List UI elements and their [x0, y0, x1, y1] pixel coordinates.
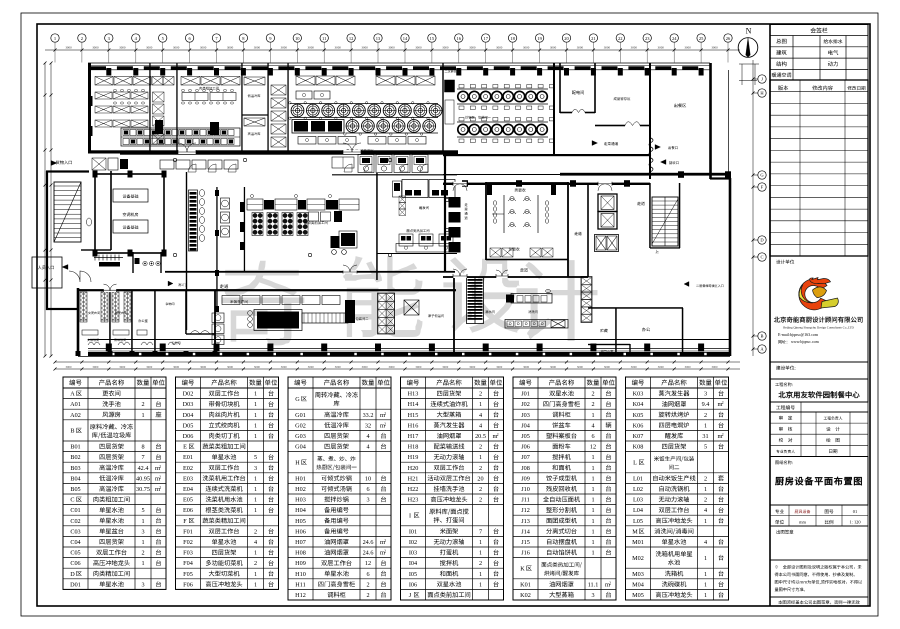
svg-text:A: A — [70, 391, 75, 398]
svg-text:3000: 3000 — [658, 46, 665, 50]
svg-text:2: 2 — [159, 475, 161, 479]
svg-text:2: 2 — [366, 581, 369, 588]
svg-text:H13: H13 — [408, 391, 419, 398]
svg-text:L02: L02 — [633, 486, 643, 493]
svg-text:H19: H19 — [408, 454, 419, 461]
svg-text:K07: K07 — [633, 433, 644, 440]
svg-text:3000: 3000 — [173, 365, 180, 369]
svg-text:9.4: 9.4 — [702, 401, 710, 408]
svg-text:1: 1 — [704, 592, 707, 599]
svg-text:2: 2 — [479, 444, 482, 451]
svg-text:1: 1 — [254, 475, 257, 482]
svg-text:1: 1 — [591, 507, 594, 514]
svg-text:I02: I02 — [409, 539, 417, 546]
svg-text:2: 2 — [704, 475, 707, 482]
svg-text:3000: 3000 — [469, 365, 476, 369]
svg-text:E-mail:bjqnsc@163.com: E-mail:bjqnsc@163.com — [778, 332, 819, 337]
svg-text:17: 17 — [483, 36, 488, 41]
svg-text:2: 2 — [81, 36, 83, 41]
svg-text:F05: F05 — [183, 571, 193, 578]
svg-text:K02: K02 — [520, 592, 531, 599]
svg-text:32: 32 — [365, 422, 371, 429]
svg-text:4: 4 — [479, 412, 482, 419]
svg-text:3000: 3000 — [550, 46, 557, 50]
svg-text:5: 5 — [254, 454, 257, 461]
svg-text:3000: 3000 — [146, 46, 153, 50]
svg-text:2: 2 — [479, 465, 482, 472]
svg-text:4: 4 — [254, 539, 257, 546]
svg-text:B: B — [760, 334, 763, 339]
svg-text:F01: F01 — [183, 528, 193, 535]
svg-text:20: 20 — [477, 475, 483, 482]
svg-text:J: J — [761, 77, 763, 82]
svg-text:K05: K05 — [633, 412, 644, 419]
svg-text:K: K — [520, 566, 525, 573]
svg-text:5: 5 — [141, 507, 144, 514]
svg-text:1: 1 — [704, 486, 707, 493]
svg-text:2: 2 — [384, 539, 386, 543]
svg-text:3: 3 — [591, 592, 594, 599]
svg-text:6: 6 — [366, 486, 369, 493]
svg-text:7: 7 — [479, 528, 482, 535]
svg-text:1: 1 — [141, 518, 144, 525]
svg-text:4: 4 — [366, 433, 369, 440]
svg-text:3000: 3000 — [496, 365, 503, 369]
svg-text:H23: H23 — [408, 497, 419, 504]
svg-text:20: 20 — [564, 36, 569, 41]
svg-text:J03: J03 — [521, 412, 530, 419]
svg-text:H06: H06 — [295, 528, 306, 535]
svg-text:1: 1 — [141, 412, 144, 419]
svg-text:A02: A02 — [70, 412, 81, 419]
svg-text:M: M — [632, 528, 638, 535]
svg-text:4: 4 — [704, 539, 707, 546]
svg-text:C04: C04 — [70, 539, 80, 546]
svg-text:3000: 3000 — [200, 365, 207, 369]
svg-text:3000: 3000 — [496, 46, 503, 50]
svg-text:B01: B01 — [70, 444, 80, 451]
svg-text:2: 2 — [722, 401, 724, 405]
svg-text:4: 4 — [366, 444, 369, 451]
svg-text:16: 16 — [457, 36, 462, 41]
svg-text:1: 1 — [479, 401, 482, 408]
svg-text:3000: 3000 — [308, 365, 315, 369]
svg-text:I06: I06 — [409, 581, 417, 588]
svg-text:2: 2 — [384, 412, 386, 416]
svg-text:40.95: 40.95 — [136, 475, 150, 482]
svg-text:12: 12 — [365, 560, 371, 567]
svg-text:1: 1 — [704, 581, 707, 588]
svg-text:K06: K06 — [633, 422, 644, 429]
svg-text:H12: H12 — [295, 592, 306, 599]
svg-text:3000: 3000 — [442, 365, 449, 369]
svg-text:E02: E02 — [183, 465, 193, 472]
svg-text:3000: 3000 — [227, 365, 234, 369]
svg-text:3000: 3000 — [711, 46, 718, 50]
svg-text:4: 4 — [591, 422, 594, 429]
svg-text:1: 1 — [254, 550, 257, 557]
svg-text:3000: 3000 — [577, 365, 584, 369]
svg-text:2: 2 — [591, 391, 594, 398]
svg-text:3000: 3000 — [442, 46, 449, 50]
svg-text:H07: H07 — [295, 539, 306, 546]
svg-text:H03: H03 — [295, 497, 306, 504]
svg-text:4: 4 — [704, 507, 707, 514]
svg-text:1: 1 — [591, 486, 594, 493]
svg-text:3000: 3000 — [658, 365, 665, 369]
svg-text:1: 1 — [254, 401, 257, 408]
svg-text:A01: A01 — [70, 401, 81, 408]
svg-text:6: 6 — [366, 571, 369, 578]
svg-text:1: 1 — [591, 539, 594, 546]
svg-text:10: 10 — [365, 475, 371, 482]
svg-text:10: 10 — [295, 36, 300, 41]
svg-text:3000: 3000 — [281, 365, 288, 369]
svg-text:3: 3 — [141, 581, 144, 588]
svg-text:2: 2 — [479, 560, 482, 567]
svg-text:J01: J01 — [521, 391, 530, 398]
svg-text:H14: H14 — [408, 401, 419, 408]
svg-text:2: 2 — [384, 422, 386, 426]
svg-text:2: 2 — [479, 497, 482, 504]
svg-text:1: 1 — [254, 422, 257, 429]
svg-text:3000: 3000 — [361, 46, 368, 50]
svg-text:H05: H05 — [295, 518, 306, 525]
svg-text:01: 01 — [853, 509, 857, 514]
svg-text:C: C — [70, 497, 74, 504]
svg-text:1: 120: 1: 120 — [849, 520, 861, 525]
svg-text:1: 1 — [704, 518, 707, 525]
svg-text:3000: 3000 — [254, 365, 261, 369]
svg-text:1: 1 — [591, 412, 594, 419]
svg-text:1: 1 — [591, 528, 594, 535]
svg-text:20.5: 20.5 — [475, 433, 486, 440]
svg-text:E03: E03 — [183, 475, 193, 482]
svg-text:M03: M03 — [632, 571, 644, 578]
svg-text:3000: 3000 — [119, 46, 126, 50]
svg-text:3000: 3000 — [389, 365, 396, 369]
svg-text:B03: B03 — [70, 465, 80, 472]
svg-text:J07: J07 — [521, 454, 530, 461]
svg-text:H08: H08 — [295, 550, 306, 557]
svg-text:1: 1 — [591, 475, 594, 482]
svg-text:H21: H21 — [408, 475, 419, 482]
svg-text:G03: G03 — [295, 433, 306, 440]
svg-text:H15: H15 — [408, 412, 419, 419]
svg-text:D04: D04 — [183, 412, 194, 419]
svg-text:2: 2 — [479, 486, 482, 493]
svg-text:F02: F02 — [183, 539, 193, 546]
svg-text:3: 3 — [254, 465, 257, 472]
svg-text:1: 1 — [479, 539, 482, 546]
svg-text:1: 1 — [254, 497, 257, 504]
svg-text:G01: G01 — [295, 412, 306, 419]
svg-text:3000: 3000 — [227, 46, 234, 50]
svg-text:3000: 3000 — [415, 46, 422, 50]
svg-text:1: 1 — [254, 433, 257, 440]
svg-text:G: G — [295, 396, 300, 403]
svg-text:H10: H10 — [295, 571, 306, 578]
svg-text:H09: H09 — [295, 560, 306, 567]
svg-text:C03: C03 — [70, 528, 80, 535]
svg-text:24: 24 — [672, 36, 677, 41]
svg-text:5: 5 — [704, 444, 707, 451]
svg-text:I05: I05 — [409, 571, 417, 578]
svg-text:3000: 3000 — [712, 365, 719, 369]
svg-text:2: 2 — [704, 497, 707, 504]
svg-text:11.1: 11.1 — [588, 581, 599, 588]
svg-text:J13: J13 — [521, 518, 530, 525]
svg-text:15: 15 — [430, 36, 435, 41]
svg-text:3000: 3000 — [415, 365, 422, 369]
svg-text:23: 23 — [645, 36, 650, 41]
svg-text:K08: K08 — [633, 444, 644, 451]
svg-text:1: 1 — [591, 550, 594, 557]
svg-text:I: I — [409, 513, 411, 520]
svg-text:1: 1 — [254, 571, 257, 578]
svg-text:F: F — [183, 518, 187, 525]
svg-text:J09: J09 — [521, 475, 530, 482]
svg-text:3000: 3000 — [577, 46, 584, 50]
svg-text:L01: L01 — [633, 475, 643, 482]
svg-text:2: 2 — [609, 581, 611, 585]
svg-text:J12: J12 — [521, 507, 530, 514]
svg-text:3000: 3000 — [335, 46, 342, 50]
svg-text:18: 18 — [510, 36, 515, 41]
svg-text:3000: 3000 — [604, 46, 611, 50]
svg-text:D05: D05 — [183, 422, 194, 429]
svg-text:11: 11 — [322, 36, 326, 41]
svg-text:4: 4 — [479, 422, 482, 429]
svg-text:1: 1 — [591, 454, 594, 461]
svg-text:21: 21 — [591, 36, 596, 41]
svg-text:7: 7 — [141, 454, 144, 461]
svg-text:12: 12 — [349, 36, 354, 41]
svg-text:H11: H11 — [295, 581, 305, 588]
svg-text:3000: 3000 — [92, 365, 99, 369]
svg-text:24.6: 24.6 — [363, 550, 374, 557]
svg-text:13: 13 — [376, 36, 381, 41]
svg-text:3000: 3000 — [362, 365, 369, 369]
svg-text:K03: K03 — [633, 391, 644, 398]
svg-text:26: 26 — [726, 36, 731, 41]
svg-text:12: 12 — [590, 444, 596, 451]
svg-text:2: 2 — [141, 550, 144, 557]
svg-text:3: 3 — [141, 528, 144, 535]
svg-text:3000: 3000 — [469, 46, 476, 50]
svg-text:H22: H22 — [408, 486, 419, 493]
svg-text:E06: E06 — [183, 507, 193, 514]
svg-text:D01: D01 — [70, 581, 81, 588]
svg-text:H20: H20 — [408, 465, 419, 472]
svg-text:J10: J10 — [521, 486, 530, 493]
svg-text:J05: J05 — [521, 433, 530, 440]
svg-text:3000: 3000 — [146, 365, 153, 369]
svg-text:3000: 3000 — [119, 365, 126, 369]
svg-text:M04: M04 — [632, 581, 644, 588]
svg-text:E01: E01 — [183, 454, 193, 461]
svg-text:F04: F04 — [183, 560, 193, 567]
svg-text:C06: C06 — [70, 560, 80, 567]
svg-text:3: 3 — [704, 391, 707, 398]
svg-text:30.75: 30.75 — [136, 486, 150, 493]
svg-text:B: B — [70, 428, 74, 435]
svg-text:H01: H01 — [295, 475, 306, 482]
svg-text:1: 1 — [704, 555, 707, 562]
svg-text:C02: C02 — [70, 518, 80, 525]
svg-text:19: 19 — [537, 36, 542, 41]
svg-text:3000: 3000 — [604, 365, 611, 369]
svg-text:H04: H04 — [295, 507, 306, 514]
svg-text:J02: J02 — [521, 401, 530, 408]
svg-text:C05: C05 — [70, 550, 80, 557]
svg-text:N: N — [746, 27, 752, 36]
svg-text:J06: J06 — [521, 444, 530, 451]
svg-text:3000: 3000 — [335, 365, 342, 369]
svg-text:6: 6 — [591, 433, 594, 440]
svg-text:1: 1 — [254, 507, 257, 514]
svg-text:1: 1 — [591, 497, 594, 504]
svg-text:I04: I04 — [409, 560, 417, 567]
svg-text:B04: B04 — [70, 475, 80, 482]
svg-text:31: 31 — [702, 433, 708, 440]
svg-text:H: H — [295, 460, 300, 467]
svg-text:J08: J08 — [521, 465, 530, 472]
svg-text:3000: 3000 — [66, 365, 73, 369]
svg-text:3000: 3000 — [523, 46, 530, 50]
svg-text:3000: 3000 — [173, 46, 180, 50]
svg-text:I03: I03 — [409, 550, 417, 557]
svg-text:H02: H02 — [295, 486, 306, 493]
svg-text:1: 1 — [591, 518, 594, 525]
svg-text:J11: J11 — [521, 497, 529, 504]
svg-text:G04: G04 — [295, 444, 306, 451]
svg-text:2: 2 — [704, 412, 707, 419]
svg-text:2: 2 — [384, 550, 386, 554]
svg-text:8: 8 — [141, 444, 144, 451]
svg-text:B02: B02 — [70, 454, 80, 461]
svg-text:2: 2 — [497, 433, 499, 437]
svg-text:3000: 3000 — [92, 46, 99, 50]
svg-text:J04: J04 — [521, 422, 530, 429]
svg-text:3000: 3000 — [65, 46, 72, 50]
svg-text:1: 1 — [704, 422, 707, 429]
svg-text:K01: K01 — [520, 581, 531, 588]
svg-text:E05: E05 — [183, 497, 193, 504]
svg-text:3000: 3000 — [685, 365, 692, 369]
svg-text:1: 1 — [479, 454, 482, 461]
svg-text:1: 1 — [141, 560, 144, 567]
svg-text:M02: M02 — [632, 555, 644, 562]
svg-text:L05: L05 — [633, 518, 643, 525]
svg-text:I01: I01 — [409, 528, 417, 535]
svg-text:3000: 3000 — [200, 46, 207, 50]
svg-text:1: 1 — [254, 412, 257, 419]
svg-text:M01: M01 — [632, 539, 644, 546]
svg-text:1: 1 — [591, 465, 594, 472]
svg-text:E04: E04 — [183, 486, 193, 493]
svg-text:3000: 3000 — [523, 365, 530, 369]
svg-text:F03: F03 — [183, 550, 193, 557]
svg-text:1: 1 — [704, 571, 707, 578]
svg-text:2: 2 — [591, 401, 594, 408]
svg-text:L: L — [633, 460, 637, 467]
svg-text:3000: 3000 — [254, 46, 261, 50]
svg-text:3000: 3000 — [550, 365, 557, 369]
svg-text:M05: M05 — [632, 592, 644, 599]
svg-text:www.bjqnsc.com: www.bjqnsc.com — [791, 339, 820, 344]
svg-text:24.6: 24.6 — [363, 539, 374, 546]
svg-text:H18: H18 — [408, 444, 419, 451]
svg-text:K04: K04 — [633, 401, 644, 408]
svg-text:B05: B05 — [70, 486, 80, 493]
svg-text:2: 2 — [254, 560, 257, 567]
svg-text:3000: 3000 — [631, 46, 638, 50]
svg-text:1: 1 — [254, 581, 257, 588]
svg-text:D03: D03 — [183, 401, 194, 408]
svg-text:2: 2 — [159, 465, 161, 469]
svg-text:1: 1 — [254, 486, 257, 493]
svg-text:3000: 3000 — [684, 46, 691, 50]
svg-text:2: 2 — [159, 486, 161, 490]
svg-text:D06: D06 — [183, 433, 194, 440]
svg-text:1: 1 — [141, 539, 144, 546]
svg-text:1: 1 — [254, 391, 257, 398]
svg-text:2: 2 — [479, 391, 482, 398]
svg-text:3000: 3000 — [388, 46, 395, 50]
svg-text:J16: J16 — [521, 550, 530, 557]
svg-text:14: 14 — [403, 36, 408, 41]
svg-text:mm: mm — [799, 520, 806, 525]
svg-text:C: C — [760, 255, 763, 260]
svg-text:3: 3 — [366, 497, 369, 504]
svg-text:H17: H17 — [408, 433, 419, 440]
svg-text:H16: H16 — [408, 422, 419, 429]
svg-text:L04: L04 — [633, 507, 643, 514]
svg-text:1: 1 — [54, 36, 56, 41]
svg-text:3000: 3000 — [308, 46, 315, 50]
svg-text:C01: C01 — [70, 507, 80, 514]
svg-text:2: 2 — [141, 401, 144, 408]
svg-text:2: 2 — [722, 433, 724, 437]
svg-text:D: D — [70, 571, 75, 578]
svg-text:G02: G02 — [295, 422, 306, 429]
svg-text:J14: J14 — [521, 528, 530, 535]
svg-text:J15: J15 — [521, 539, 530, 546]
svg-text:D02: D02 — [183, 391, 194, 398]
svg-text:3000: 3000 — [281, 46, 288, 50]
svg-text:2: 2 — [254, 528, 257, 535]
svg-text:F06: F06 — [183, 581, 193, 588]
svg-text:1: 1 — [479, 571, 482, 578]
svg-text:1: 1 — [479, 581, 482, 588]
svg-text:33.2: 33.2 — [363, 412, 374, 419]
svg-text:L03: L03 — [633, 497, 643, 504]
svg-text:3000: 3000 — [631, 365, 638, 369]
svg-text:2: 2 — [366, 592, 369, 599]
svg-text:E: E — [183, 444, 187, 451]
svg-text:25: 25 — [699, 36, 704, 41]
svg-text:22: 22 — [618, 36, 623, 41]
svg-text:42.4: 42.4 — [138, 465, 149, 472]
svg-text:1: 1 — [479, 550, 482, 557]
